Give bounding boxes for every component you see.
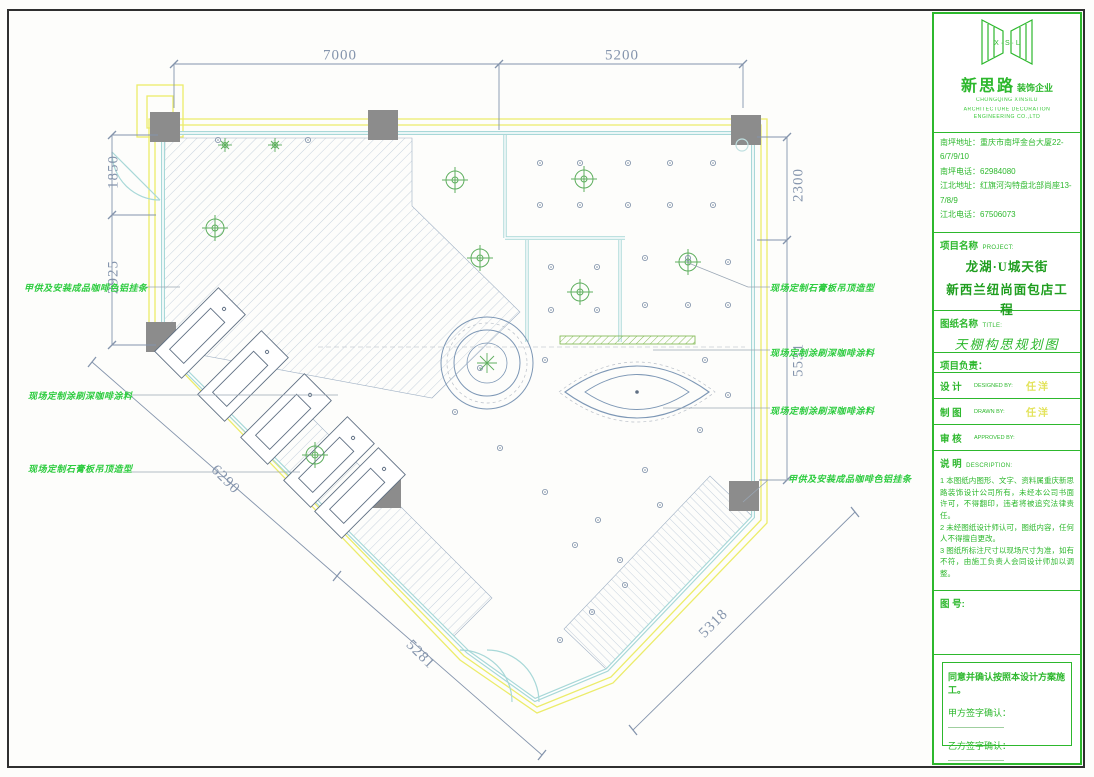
note-item-1: 1 本图纸内图形、文字、资料属重庆新思路装饰设计公司所有，未经本公司书面许可，不… [940,475,1074,522]
project-label-cn: 项目名称 [940,241,978,252]
party-a-sign-label: 甲方签字确认： [948,708,1011,718]
signature-section: 同意并确认按照本设计方案施工。 甲方签字确认： 乙方签字确认： [934,655,1080,763]
project-leader-row: 项目负责： [934,353,1080,373]
note-item-2: 2 未经图纸设计师认可，图纸内容，任何人不得擅自更改。 [940,522,1074,545]
sheet-label-cn: 图纸名称 [940,319,978,330]
company-name-en-1: CHONGQING XINSILU [950,97,1064,105]
notes-label-en: DESCRIPTION: [966,463,1012,469]
designed-by-name: 任洋 [1026,378,1050,393]
eye-ceiling-feature [559,362,715,422]
project-leader-label: 项目负责： [940,361,988,372]
designed-by-row: 设 计 DESIGNED BY: 任洋 [934,373,1080,399]
party-a-sign-field [948,719,1004,728]
company-name-en-2: ARCHITECTURE DECORATION ENGINEERING CO.,… [950,106,1064,121]
approved-by-row: 审 核 APPROVED BY: [934,425,1080,451]
note-item-3: 3 图纸所标注尺寸以现场尺寸为准，如有不符，由施工负责人会同设计师加以调整。 [940,545,1074,580]
project-name-line1: 龙湖·U城天街 [940,257,1074,277]
sheet-title: 天棚构思规划图 [940,334,1074,353]
hatched-regions [163,138,753,670]
approved-by-label-en: APPROVED BY: [974,435,1026,441]
title-block: X · S · L 新思路装饰企业 CHONGQING XINSILU ARCH… [932,12,1082,765]
figure-number-section: 图 号: [934,591,1080,655]
project-label-en: PROJECT: [982,245,1013,251]
figure-number-label: 图 号: [940,599,965,610]
sheet-label-en: TITLE: [982,323,1002,329]
contact-line-2: 南坪电话：62984080 [940,165,1074,179]
logo-initials: X · S · L [994,40,1020,47]
company-name-cn: 新思路 [961,78,1015,95]
company-name-suffix: 装饰企业 [1017,83,1053,93]
drawn-by-name: 任洋 [1026,404,1050,419]
signature-box: 同意并确认按照本设计方案施工。 甲方签字确认： 乙方签字确认： [942,662,1072,746]
project-name-section: 项目名称 PROJECT: 龙湖·U城天街 新西兰纽尚面包店工程 [934,233,1080,311]
confirmation-statement: 同意并确认按照本设计方案施工。 [948,670,1066,696]
ceiling-plan-drawing [8,10,930,767]
green-sill-hatch [560,336,695,344]
company-contact-section: 南坪地址：重庆市南坪金台大厦22-6/7/9/10 南坪电话：62984080 … [934,133,1080,233]
party-b-sign-label: 乙方签字确认： [948,741,1011,751]
party-b-sign-field [948,752,1004,761]
sheet-title-section: 图纸名称 TITLE: 天棚构思规划图 [934,311,1080,353]
company-logo-section: X · S · L 新思路装饰企业 CHONGQING XINSILU ARCH… [934,14,1080,133]
notes-section: 说 明 DESCRIPTION: 1 本图纸内图形、文字、资料属重庆新思路装饰设… [934,451,1080,591]
approved-by-label-cn: 审 核 [940,431,974,445]
contact-line-3: 江北地址：红旗河沟特盘北部尚座13-7/8/9 [940,179,1074,208]
designed-by-label-cn: 设 计 [940,379,974,393]
notes-label-cn: 说 明 [940,459,962,470]
drawn-by-label-cn: 制 图 [940,405,974,419]
contact-line-1: 南坪地址：重庆市南坪金台大厦22-6/7/9/10 [940,136,1074,165]
contact-line-4: 江北电话：67506073 [940,208,1074,222]
drawn-by-row: 制 图 DRAWN BY: 任洋 [934,399,1080,425]
drawn-by-label-en: DRAWN BY: [974,409,1026,415]
designed-by-label-en: DESIGNED BY: [974,383,1026,389]
company-logo-icon: X · S · L [976,17,1038,67]
